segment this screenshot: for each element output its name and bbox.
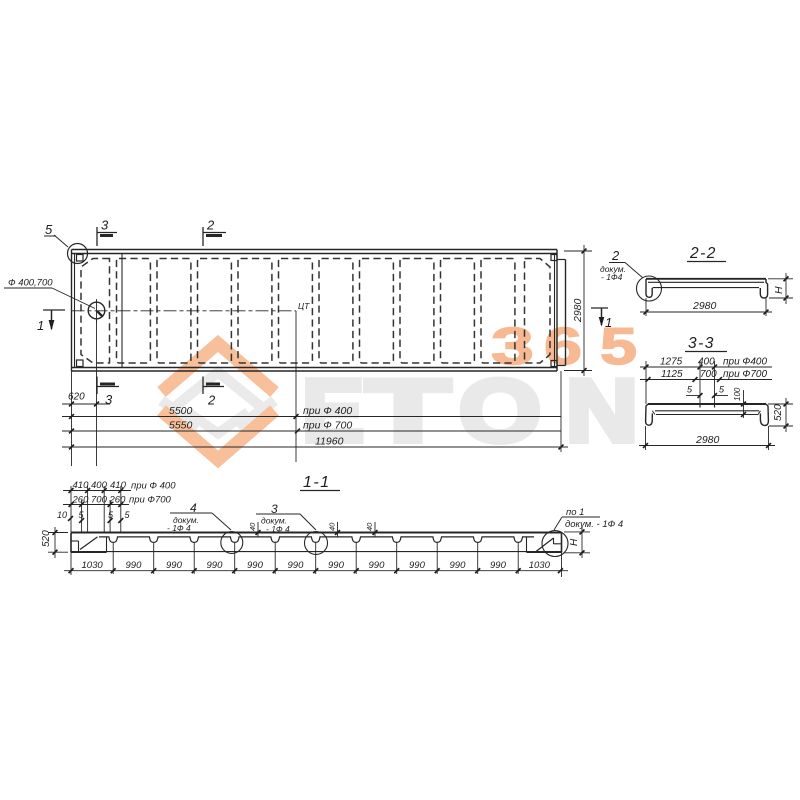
svg-text:410: 410 — [73, 480, 90, 491]
svg-text:990: 990 — [207, 560, 224, 571]
svg-text:1: 1 — [605, 315, 612, 330]
svg-text:2980: 2980 — [692, 300, 717, 312]
svg-text:620: 620 — [68, 392, 85, 403]
svg-text:990: 990 — [450, 560, 467, 571]
svg-text:400: 400 — [698, 357, 715, 368]
svg-text:400: 400 — [91, 480, 108, 491]
svg-text:40: 40 — [365, 522, 374, 531]
svg-text:- 1Ф 4: - 1Ф 4 — [167, 523, 191, 533]
svg-text:по 1: по 1 — [566, 507, 584, 518]
svg-text:990: 990 — [288, 560, 305, 571]
svg-text:1275: 1275 — [660, 357, 683, 368]
svg-text:700: 700 — [91, 495, 108, 506]
svg-text:520: 520 — [41, 530, 52, 547]
svg-text:990: 990 — [328, 560, 345, 571]
svg-text:2980: 2980 — [695, 434, 720, 446]
svg-text:520: 520 — [773, 404, 784, 421]
svg-text:2: 2 — [611, 248, 620, 263]
svg-text:докум. - 1Ф 4: докум. - 1Ф 4 — [565, 519, 623, 530]
svg-text:990: 990 — [126, 560, 143, 571]
svg-text:1-1: 1-1 — [303, 474, 331, 491]
svg-text:990: 990 — [490, 560, 507, 571]
svg-text:990: 990 — [166, 560, 183, 571]
svg-text:H: H — [569, 538, 580, 546]
svg-text:при Ф 400: при Ф 400 — [131, 481, 176, 492]
svg-text:3: 3 — [105, 392, 113, 407]
svg-text:Ф 400,700: Ф 400,700 — [8, 278, 53, 289]
svg-text:260: 260 — [109, 495, 127, 506]
svg-text:5500: 5500 — [169, 405, 193, 417]
svg-text:1030: 1030 — [529, 560, 551, 571]
svg-text:990: 990 — [247, 560, 264, 571]
svg-text:1125: 1125 — [661, 369, 683, 380]
svg-text:при Ф400: при Ф400 — [723, 357, 767, 368]
svg-text:2-2: 2-2 — [689, 245, 717, 262]
svg-text:ЦТ: ЦТ — [298, 301, 310, 311]
svg-text:- 1Ф4: - 1Ф4 — [601, 272, 623, 282]
svg-text:1030: 1030 — [82, 560, 104, 571]
svg-text:при Ф700: при Ф700 — [723, 369, 767, 380]
svg-text:2: 2 — [206, 218, 215, 233]
svg-text:T: T — [366, 361, 450, 460]
svg-text:100: 100 — [733, 387, 742, 401]
svg-text:40: 40 — [328, 522, 337, 531]
svg-text:- 1Ф 4: - 1Ф 4 — [266, 524, 290, 534]
svg-text:5550: 5550 — [169, 420, 193, 432]
svg-text:при Ф 700: при Ф 700 — [303, 420, 352, 432]
svg-text:5: 5 — [45, 222, 53, 237]
svg-text:1: 1 — [37, 318, 44, 333]
svg-text:3-3: 3-3 — [688, 335, 715, 352]
svg-text:2980: 2980 — [572, 298, 584, 323]
svg-text:40: 40 — [248, 522, 257, 531]
svg-text:410: 410 — [110, 480, 127, 491]
svg-text:990: 990 — [369, 560, 386, 571]
svg-text:260: 260 — [72, 495, 90, 506]
svg-text:3: 3 — [101, 218, 109, 233]
svg-text:990: 990 — [409, 560, 426, 571]
svg-text:H: H — [773, 286, 785, 294]
svg-text:11960: 11960 — [315, 436, 344, 448]
svg-text:при Ф 400: при Ф 400 — [303, 405, 352, 417]
svg-text:при Ф700: при Ф700 — [129, 495, 172, 506]
svg-text:10: 10 — [57, 510, 67, 520]
svg-text:2: 2 — [207, 393, 216, 408]
